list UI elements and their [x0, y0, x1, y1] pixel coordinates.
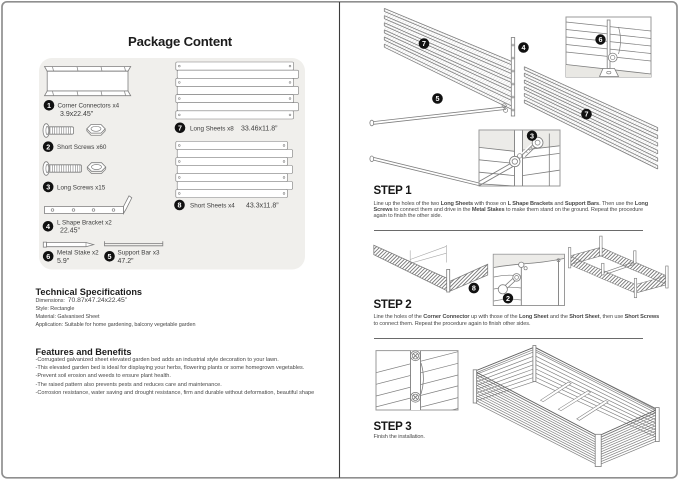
- svg-text:22.45”: 22.45”: [60, 228, 81, 235]
- svg-text:7: 7: [422, 39, 426, 48]
- svg-text:3: 3: [530, 131, 534, 140]
- svg-text:1: 1: [47, 101, 51, 110]
- svg-text:43.3x11.8”: 43.3x11.8”: [246, 202, 279, 209]
- svg-text:L Shape Bracket x2: L Shape Bracket x2: [57, 219, 112, 226]
- svg-text:33.46x11.8”: 33.46x11.8”: [241, 125, 278, 132]
- svg-text:Support Bar x3: Support Bar x3: [118, 250, 161, 257]
- svg-text:3.9x22.45”: 3.9x22.45”: [60, 111, 94, 118]
- svg-text:Metal Stake x2: Metal Stake x2: [57, 250, 99, 257]
- svg-text:6: 6: [46, 252, 50, 261]
- svg-text:5: 5: [108, 252, 112, 261]
- svg-text:2: 2: [506, 294, 510, 303]
- svg-text:7: 7: [178, 123, 182, 132]
- svg-text:6: 6: [599, 35, 603, 44]
- svg-text:5.9”: 5.9”: [57, 258, 70, 265]
- svg-text:8: 8: [472, 284, 476, 293]
- svg-text:Long Sheets x8: Long Sheets x8: [190, 125, 234, 132]
- svg-text:Corner Connectors x4: Corner Connectors x4: [58, 103, 120, 110]
- svg-text:Long Screws x15: Long Screws x15: [57, 184, 106, 191]
- svg-text:5: 5: [436, 94, 440, 103]
- svg-text:4: 4: [522, 43, 526, 52]
- svg-text:Short Sheets x4: Short Sheets x4: [190, 202, 235, 209]
- svg-text:8: 8: [178, 201, 182, 210]
- svg-text:2: 2: [46, 142, 50, 151]
- svg-text:3: 3: [46, 183, 50, 192]
- svg-text:7: 7: [585, 110, 589, 119]
- svg-text:47.2”: 47.2”: [118, 258, 135, 265]
- svg-text:Short Screws x60: Short Screws x60: [57, 144, 107, 151]
- svg-text:4: 4: [46, 222, 50, 231]
